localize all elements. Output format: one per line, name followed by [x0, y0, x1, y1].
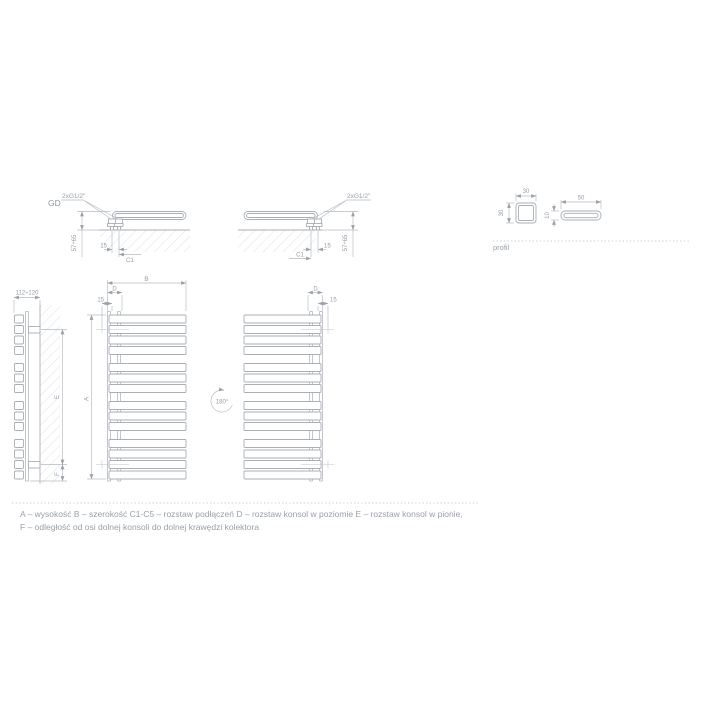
- dim-15-value: 15: [100, 244, 107, 250]
- connection-thread-label: 2xG1/2": [347, 193, 371, 200]
- connection-fittings: [108, 219, 124, 230]
- panel-section: [113, 212, 187, 220]
- dim-15-value: 15: [330, 298, 337, 304]
- dim-b: B: [108, 276, 187, 311]
- wall-hatch: [238, 231, 316, 253]
- dim-d: D: [108, 287, 123, 312]
- dim-c1-value: C1: [296, 253, 304, 259]
- dim-f-value: F: [55, 472, 61, 476]
- dim-a: A: [84, 315, 107, 479]
- dim-depth-value: 57÷65: [72, 234, 78, 251]
- profile-flat: 50 10: [545, 196, 601, 228]
- dim-15-value: 15: [97, 298, 104, 304]
- dim-square-width: 30: [523, 189, 530, 195]
- connection-thread-label: 2xG1/2": [62, 193, 86, 200]
- rotated-view: D 15: [244, 287, 337, 482]
- dim-c1: C1: [119, 255, 141, 265]
- dim-c1: C1: [289, 253, 311, 259]
- legend-line-2: F – odległość od osi dolnej konsoli do d…: [20, 521, 700, 534]
- view-code-label: GD: [48, 198, 61, 208]
- panel-profiles-side: [15, 315, 24, 479]
- front-view: B D 15 A: [84, 276, 187, 481]
- dim-flat-height: 10: [545, 212, 551, 219]
- legend-line-1: A – wysokość B – szerokość C1-C5 – rozst…: [20, 508, 700, 521]
- drawing-canvas: GD 2xG1/2" 57÷65: [0, 0, 720, 720]
- dim-depth: 57÷65: [322, 212, 358, 258]
- technical-drawing-page: GD 2xG1/2" 57÷65: [0, 0, 720, 720]
- dim-e-value: E: [55, 395, 61, 399]
- dim-depth-value: 57÷65: [343, 234, 349, 251]
- section-profiles: 30 30 50 10 profil: [493, 189, 691, 252]
- dim-c1-value: C1: [126, 258, 134, 264]
- connection-fittings: [307, 219, 323, 230]
- profile-square: 30 30: [499, 189, 536, 223]
- dim-d-value: D: [112, 287, 117, 293]
- console-bracket-top: [29, 327, 41, 334]
- dim-wall-distance-value: 112÷120: [16, 291, 40, 297]
- dim-b-value: B: [144, 276, 148, 283]
- profile-caption: profil: [493, 243, 510, 252]
- panel-section: [244, 212, 318, 220]
- side-view: 112÷120 E F: [14, 291, 67, 484]
- dim-d-value: D: [313, 287, 318, 293]
- dim-flat-width: 50: [578, 196, 585, 202]
- dim-a-value: A: [84, 396, 91, 401]
- dim-square-height: 30: [499, 209, 505, 216]
- legend: A – wysokość B – szerokość C1-C5 – rozst…: [20, 508, 700, 533]
- rotation-symbol: 180°: [211, 390, 232, 412]
- dim-wall-distance: 112÷120: [14, 291, 40, 314]
- wall-hatch: [100, 231, 190, 253]
- section-connection-left: GD 2xG1/2" 57÷65: [48, 193, 190, 264]
- dim-d: D: [308, 287, 323, 312]
- console-bracket-bottom: [29, 462, 41, 469]
- section-connection-right: 2xG1/2" 57÷65 15 C1: [238, 193, 371, 259]
- dim-15-value: 15: [324, 244, 331, 250]
- wall-hatch: [40, 305, 60, 484]
- rotation-label: 180°: [216, 400, 229, 406]
- collector-tube: [26, 312, 29, 482]
